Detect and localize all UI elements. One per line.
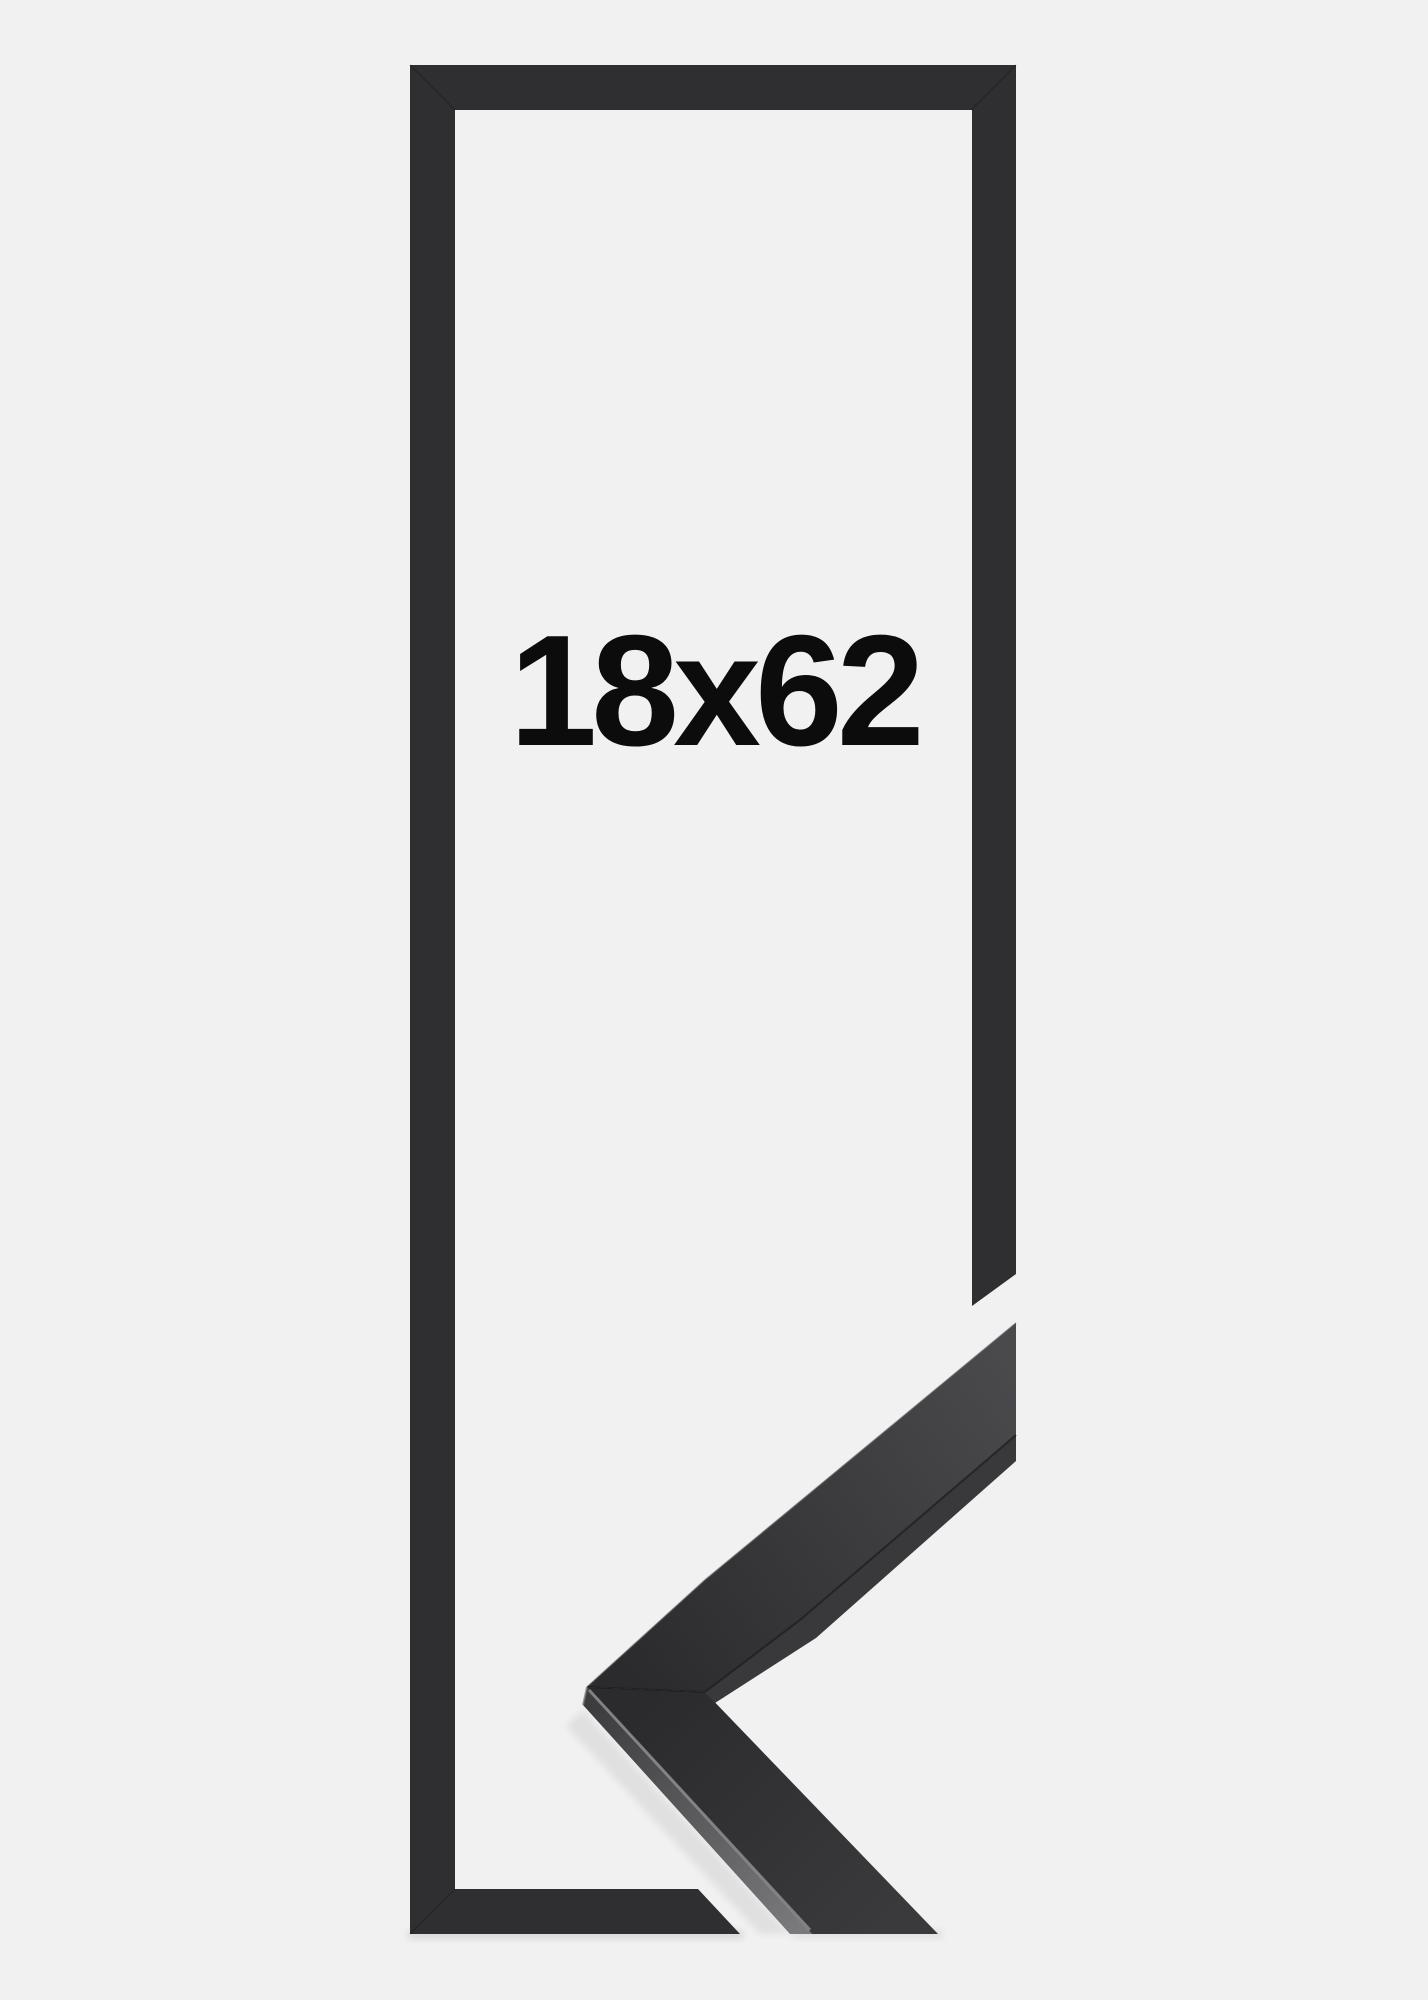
frame-top-bar xyxy=(410,65,1016,110)
size-label: 18x62 xyxy=(509,603,918,779)
frame-bottom-bar xyxy=(410,1889,740,1934)
frame-left-bar xyxy=(410,65,455,1934)
product-image[interactable]: 18x62 xyxy=(0,0,1428,2000)
frame-illustration: 18x62 xyxy=(0,0,1428,2000)
frame-right-bar xyxy=(972,65,1016,1306)
